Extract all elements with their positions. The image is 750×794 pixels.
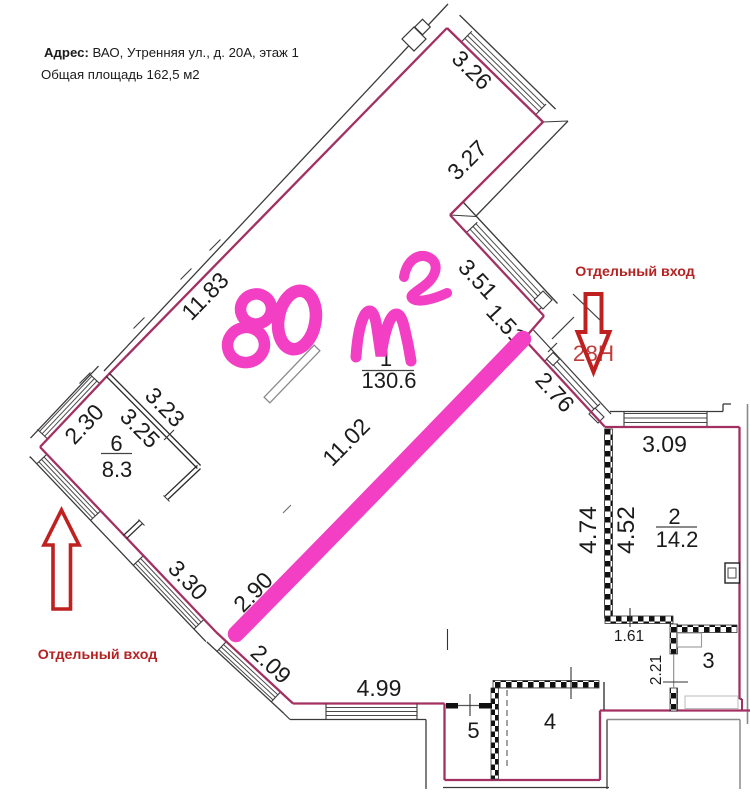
- svg-text:Общая площадь 162,5 м2: Общая площадь 162,5 м2: [41, 67, 200, 82]
- svg-text:8.3: 8.3: [102, 457, 133, 482]
- svg-text:5: 5: [467, 718, 479, 743]
- svg-text:1.61: 1.61: [614, 628, 644, 645]
- svg-text:4: 4: [544, 709, 556, 734]
- svg-text:28Н: 28Н: [573, 341, 614, 366]
- svg-text:2.21: 2.21: [648, 655, 665, 685]
- svg-text:14.2: 14.2: [656, 527, 699, 552]
- svg-text:Адрес: ВАО, Утренняя ул., д. 2: Адрес: ВАО, Утренняя ул., д. 20А, этаж 1: [44, 45, 299, 60]
- svg-text:3.09: 3.09: [642, 431, 687, 457]
- svg-text:Отдельный вход: Отдельный вход: [575, 264, 695, 280]
- svg-text:Отдельный вход: Отдельный вход: [38, 647, 158, 663]
- svg-text:3: 3: [702, 648, 714, 673]
- svg-text:4.99: 4.99: [357, 675, 402, 701]
- svg-text:6: 6: [110, 431, 122, 456]
- svg-text:4.52: 4.52: [613, 506, 640, 554]
- svg-text:130.6: 130.6: [361, 368, 416, 393]
- svg-text:2: 2: [668, 504, 680, 529]
- svg-text:4.74: 4.74: [575, 506, 602, 554]
